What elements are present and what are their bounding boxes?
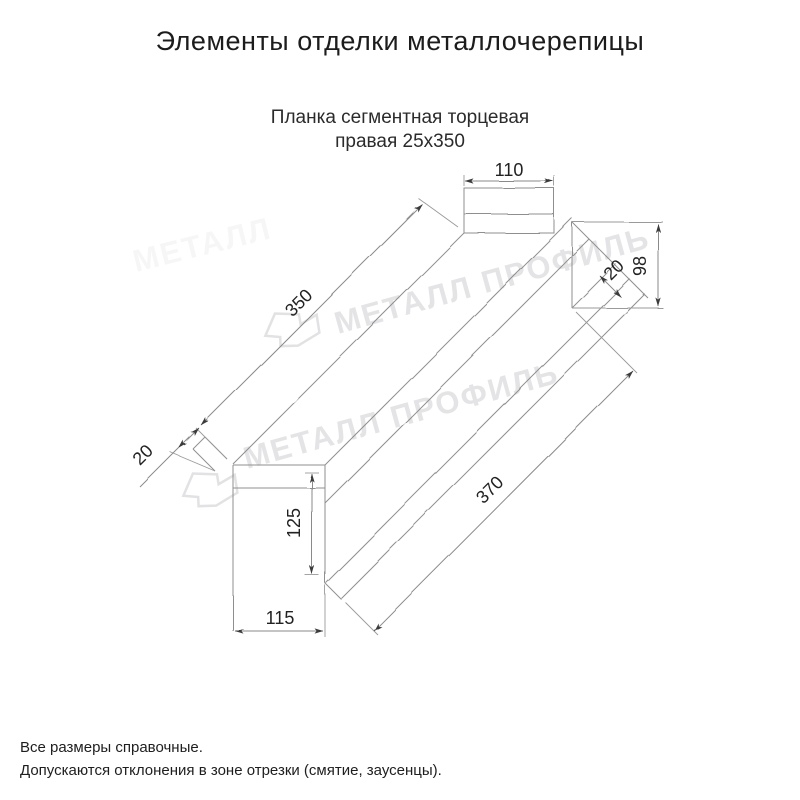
drawing-sheet: Элементы отделки металлочерепицы Планка … [0,0,800,800]
watermark-text-upper: МЕТАЛЛ ПРОФИЛЬ [331,220,654,341]
metal-profil-logo-icon [178,463,241,513]
ext-line [418,198,458,227]
ext-line [196,428,227,459]
dim-20-left-label: 20 [129,441,157,469]
dim-115-label: 115 [266,608,295,628]
footer-note-1: Все размеры справочные. [20,737,442,760]
dim-110-label: 110 [495,160,524,180]
ext-line [576,312,637,373]
lower-face-end-edge [325,583,341,599]
ext-line [170,452,215,471]
footer-note-2: Допускаются отклонения в зоне отрезки (с… [20,760,442,783]
footer-notes: Все размеры справочные. Допускаются откл… [20,737,442,782]
lower-face-right-edge [341,294,645,598]
dim-125-label: 125 [284,508,304,538]
watermark-faint-text: МЕТАЛЛ [129,211,275,279]
cut-end-edge [193,437,205,449]
dim-98-label: 98 [630,256,650,276]
top-flange [464,188,554,233]
watermark-text-lower: МЕТАЛЛ ПРОФИЛЬ [240,355,563,476]
ext-line [345,602,378,635]
cut-end-mark-inner [193,449,215,471]
dim-20-left-line [179,428,199,448]
upper-face-right-edge [325,218,572,465]
technical-drawing: МЕТАЛЛ МЕТАЛЛ ПРОФИЛЬ МЕТАЛЛ ПРОФИЛЬ [0,0,800,800]
watermark-faint-fragment: МЕТАЛЛ [129,211,275,279]
